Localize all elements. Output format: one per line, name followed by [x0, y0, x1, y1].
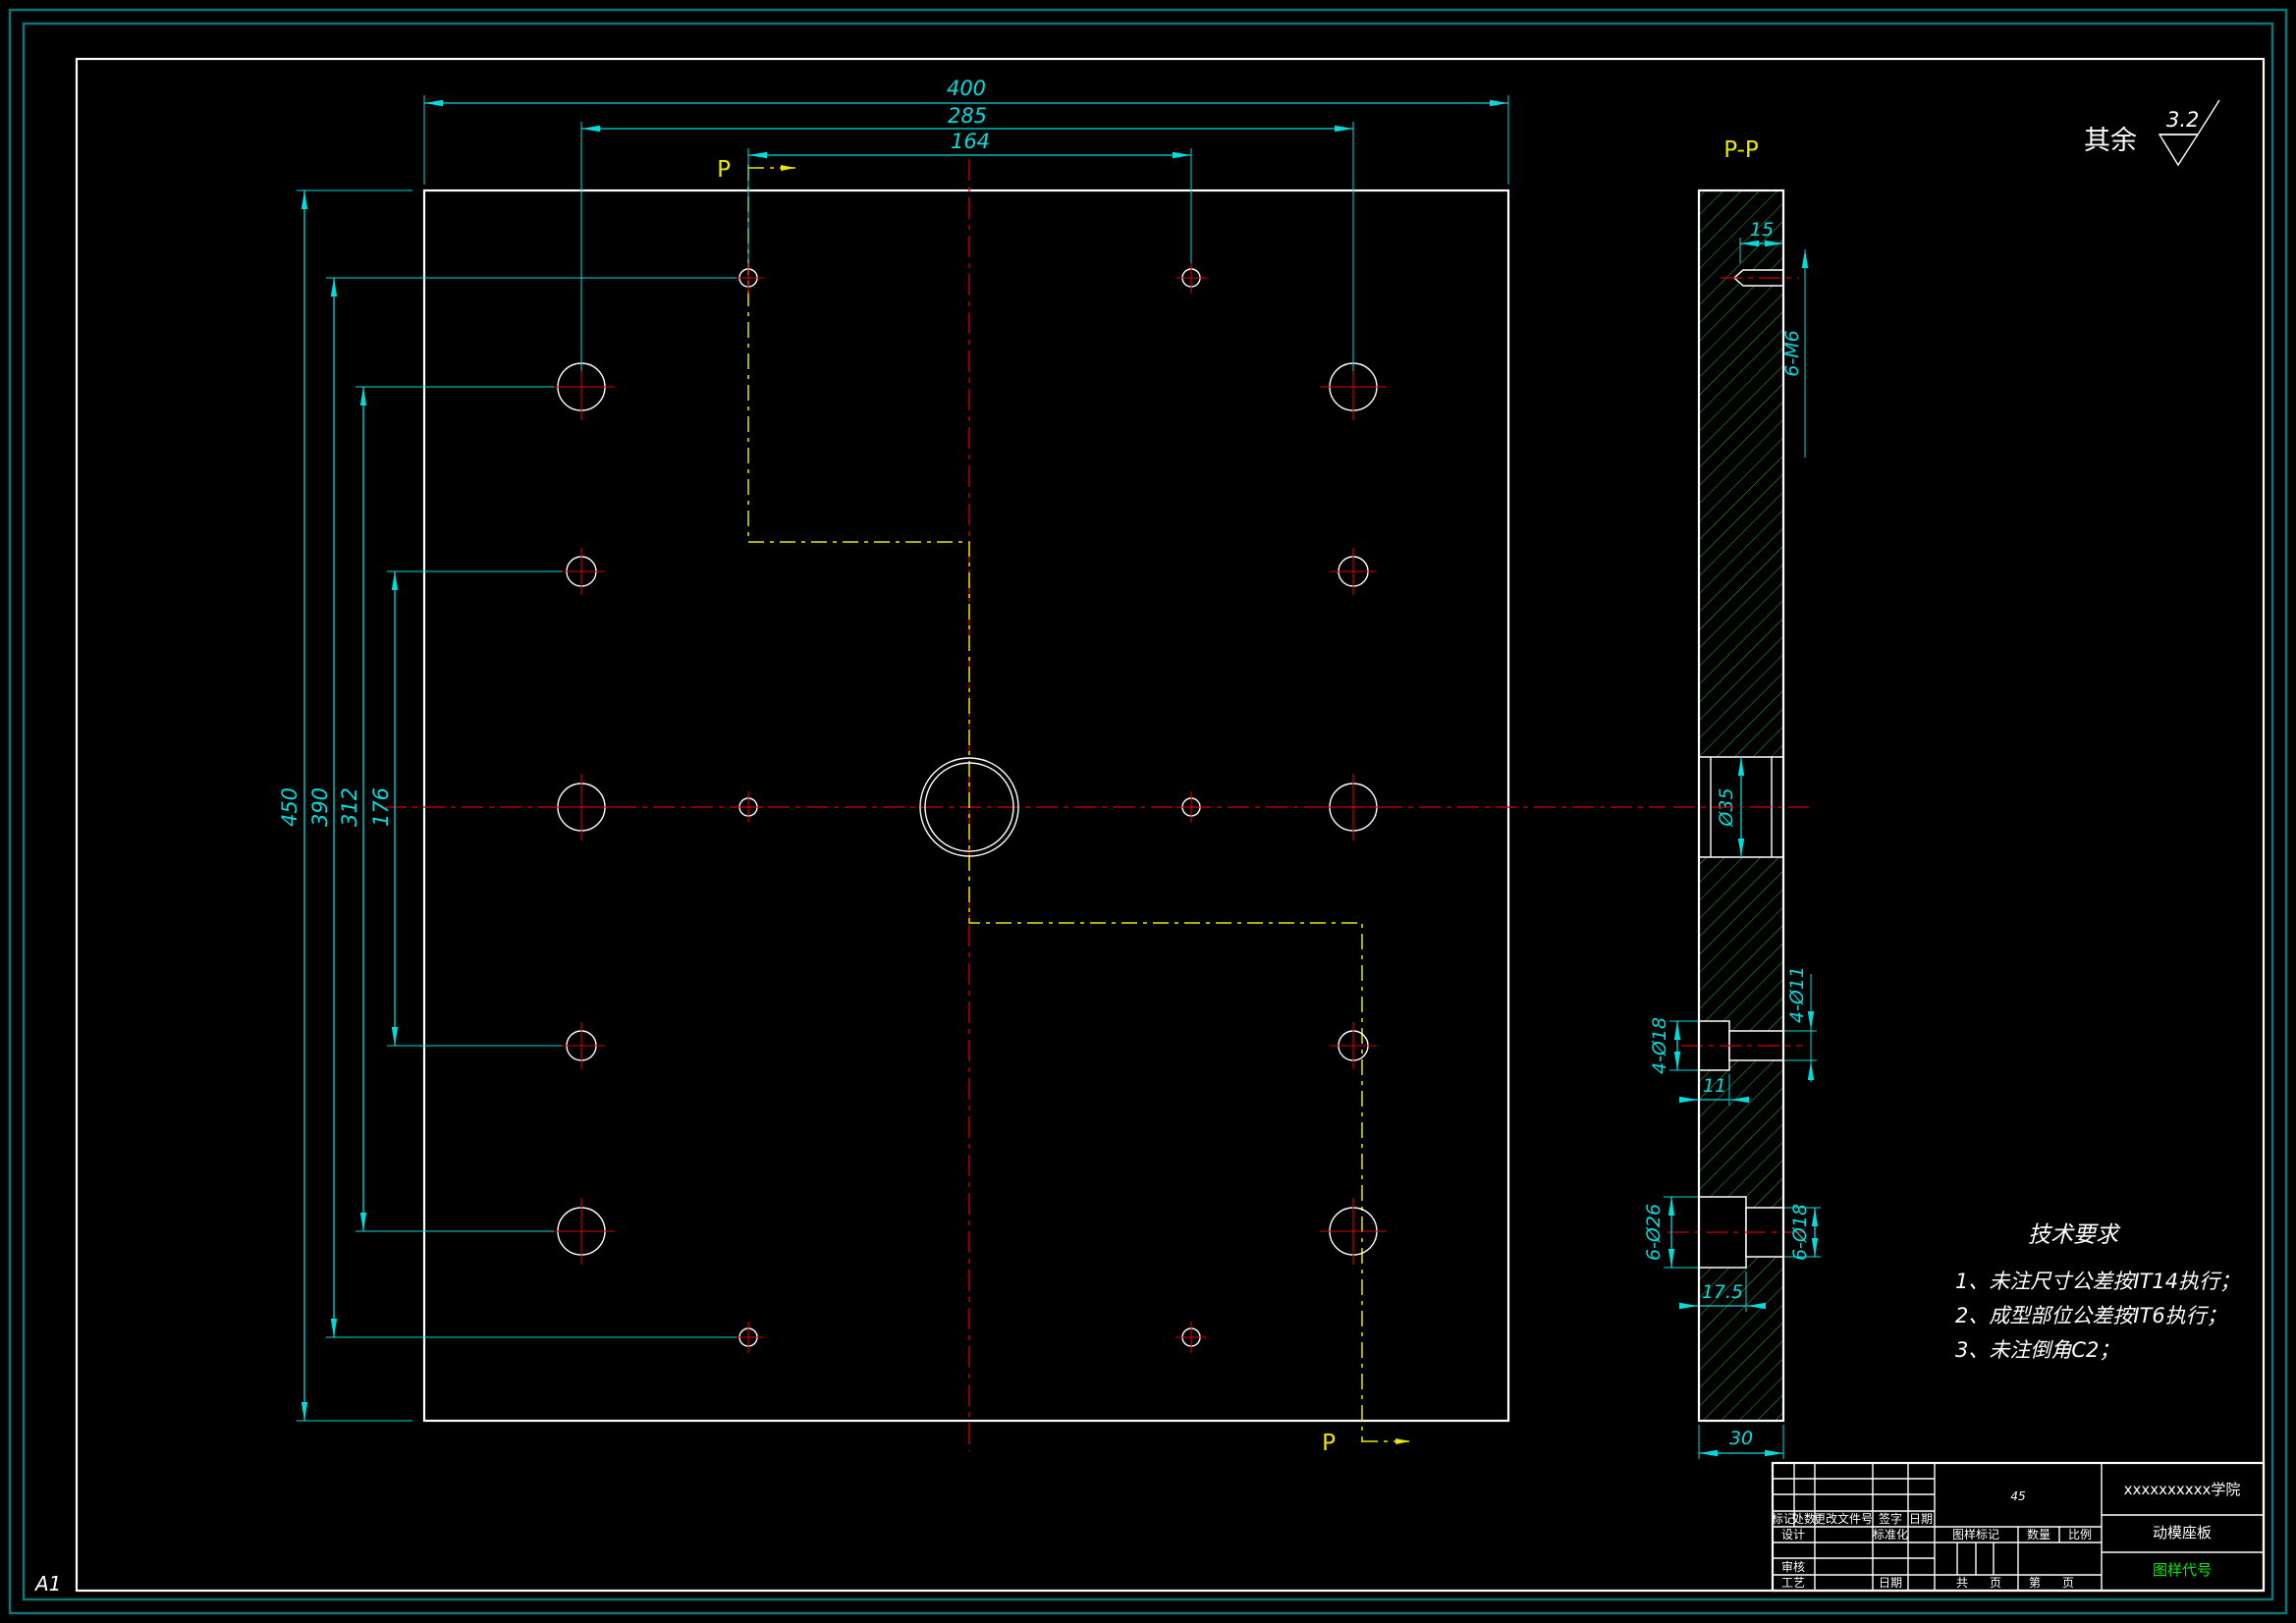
section-label-p-bottom: P — [1322, 1431, 1336, 1456]
plate-outline — [424, 190, 1508, 1421]
tb-label-page: 页 — [1990, 1576, 2001, 1590]
tb-label-drawing-mark: 图样标记 — [1952, 1527, 1999, 1542]
section-cutting-line — [748, 165, 1362, 1442]
dim-11-label: 11 — [1703, 1075, 1726, 1097]
cad-drawing-canvas: 400 285 164 450 390 312 — [0, 0, 2296, 1623]
tech-req-item-2: 2、成型部位公差按IT6执行； — [1949, 1299, 2296, 1333]
technical-requirements: 技术要求 1、未注尺寸公差按IT14执行； 2、成型部位公差按IT6执行； 3、… — [1949, 1216, 2296, 1368]
section-cb26-hole: 6-Ø26 6-Ø18 17.5 — [1643, 1197, 1821, 1312]
dim-400-label: 400 — [947, 77, 986, 100]
tb-label-scale: 比例 — [2068, 1528, 2092, 1542]
label-6-d18: 6-Ø18 — [1789, 1204, 1811, 1261]
dim-30-label: 30 — [1729, 1428, 1753, 1449]
tb-label-qty: 数量 — [2027, 1527, 2050, 1542]
dim-17-5-label: 17.5 — [1702, 1281, 1743, 1303]
dim-span-176: 176 — [369, 571, 562, 1046]
section-view: P-P 15 6-M6 Ø — [1643, 137, 1821, 1459]
drawing-frame — [77, 59, 2264, 1591]
front-view: 400 285 164 450 390 312 — [278, 77, 1665, 1456]
tech-req-item-1: 1、未注尺寸公差按IT14执行； — [1949, 1265, 2296, 1299]
tb-label-no: 第 — [2029, 1576, 2041, 1590]
dim-15-label: 15 — [1750, 219, 1774, 241]
label-6-d26: 6-Ø26 — [1643, 1204, 1665, 1261]
tb-label-standardize: 标准化 — [1873, 1528, 1908, 1542]
dim-285-label: 285 — [948, 104, 987, 128]
title-block: 标记 处数 更改文件号 签字 日期 设计 标准化 审核 工艺 日期 45 图样标… — [1772, 1463, 2264, 1591]
tb-label-total: 共 — [1956, 1576, 1968, 1590]
tb-label-date2: 日期 — [1879, 1576, 1902, 1590]
tb-drawing-code: 图样代号 — [2153, 1561, 2212, 1579]
tb-label-page2: 页 — [2062, 1576, 2074, 1590]
section-label-p-top: P — [717, 157, 731, 183]
tech-req-item-3: 3、未注倒角C2； — [1949, 1333, 2296, 1368]
section-arrow-top: P — [717, 157, 795, 183]
roughness-note: 其余 3.2 — [2084, 100, 2219, 165]
label-4-d18: 4-Ø18 — [1649, 1017, 1670, 1074]
tb-label-count: 处数 — [1792, 1511, 1816, 1526]
tb-label-change-doc: 更改文件号 — [1814, 1511, 1873, 1526]
roughness-value: 3.2 — [2166, 108, 2199, 132]
dim-thickness-30: 30 — [1699, 1425, 1783, 1459]
dim-312-label: 312 — [338, 787, 361, 827]
tb-label-sign: 签字 — [1879, 1511, 1902, 1526]
label-4-d11: 4-Ø11 — [1786, 966, 1808, 1023]
counterbore-holes-26 — [548, 353, 1387, 1265]
roughness-prefix: 其余 — [2084, 126, 2137, 156]
dim-450-label: 450 — [278, 787, 301, 827]
sheet-size-label: A1 — [33, 1572, 61, 1596]
tb-label-process: 工艺 — [1781, 1576, 1805, 1590]
tb-label-date: 日期 — [1909, 1512, 1933, 1526]
dim-176-label: 176 — [369, 787, 393, 827]
drawing-sheet: 400 285 164 450 390 312 — [0, 0, 2296, 1623]
section-arrow-bottom: P — [1322, 1431, 1410, 1456]
dim-164-label: 164 — [951, 130, 990, 153]
tb-material: 45 — [2010, 1489, 2025, 1503]
tb-school: xxxxxxxxxx学院 — [2124, 1481, 2241, 1498]
label-6-m6: 6-M6 — [1781, 330, 1803, 376]
counterbore-holes-18 — [558, 548, 1377, 1069]
dim-390-label: 390 — [308, 787, 332, 827]
tb-part-name: 动模座板 — [2153, 1524, 2212, 1542]
section-view-title: P-P — [1723, 137, 1759, 163]
tb-label-review: 审核 — [1781, 1559, 1805, 1574]
tb-label-design: 设计 — [1781, 1528, 1805, 1542]
tech-req-title: 技术要求 — [2028, 1216, 2296, 1249]
